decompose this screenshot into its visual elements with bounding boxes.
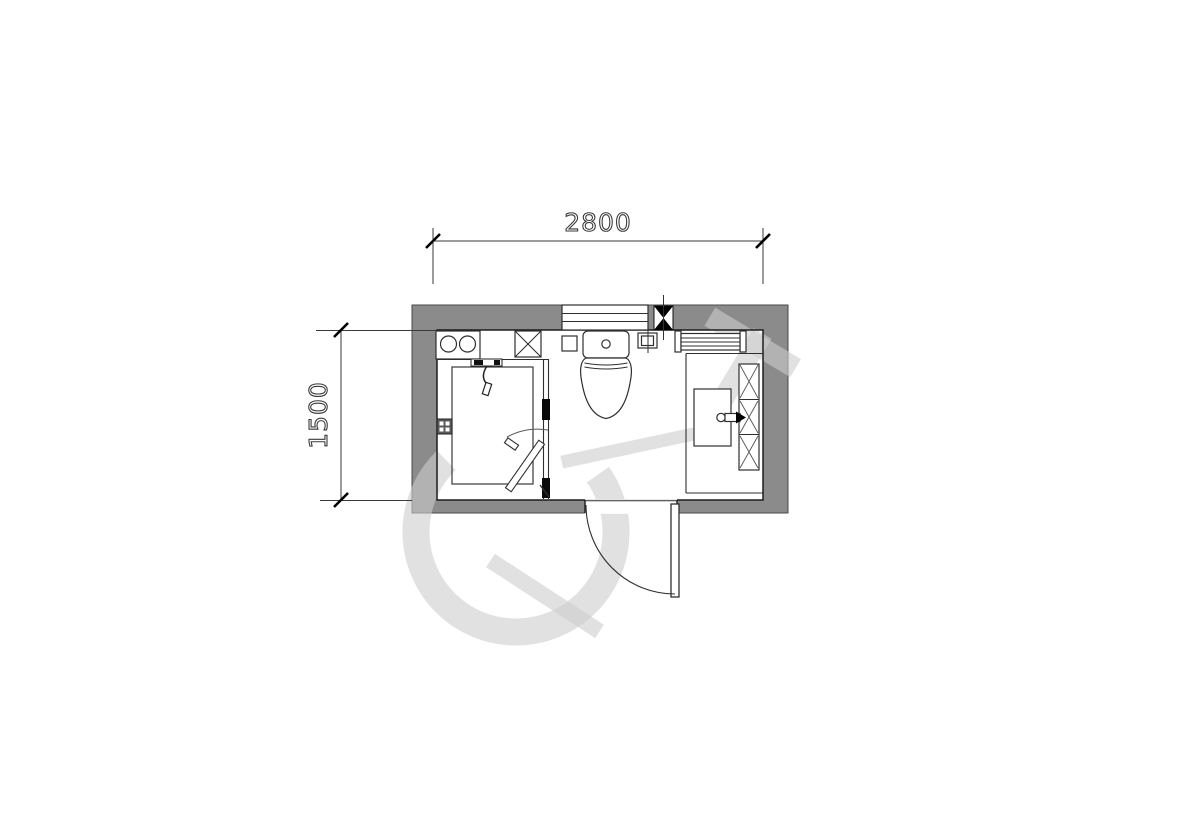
toilet-icon: [581, 331, 632, 419]
shower-mixer-icon: [471, 359, 502, 396]
dimension-top: 2800: [426, 208, 770, 284]
dimension-height-label: 1500: [304, 381, 333, 449]
shower-area: [437, 359, 550, 499]
water-heater-icon: [436, 331, 480, 359]
floor-plan-page: 2800 1500: [0, 0, 1198, 831]
floor-drain-icon: [562, 336, 577, 351]
pipe-shaft-icon: [515, 331, 541, 357]
window-icon: [562, 305, 648, 330]
floor-plan-drawing: 2800 1500: [0, 0, 1198, 831]
water-point-icon: [638, 330, 657, 353]
towel-rack-icon: [675, 331, 746, 352]
floor-drain-icon: [437, 419, 452, 434]
dimension-width-label: 2800: [564, 208, 632, 237]
